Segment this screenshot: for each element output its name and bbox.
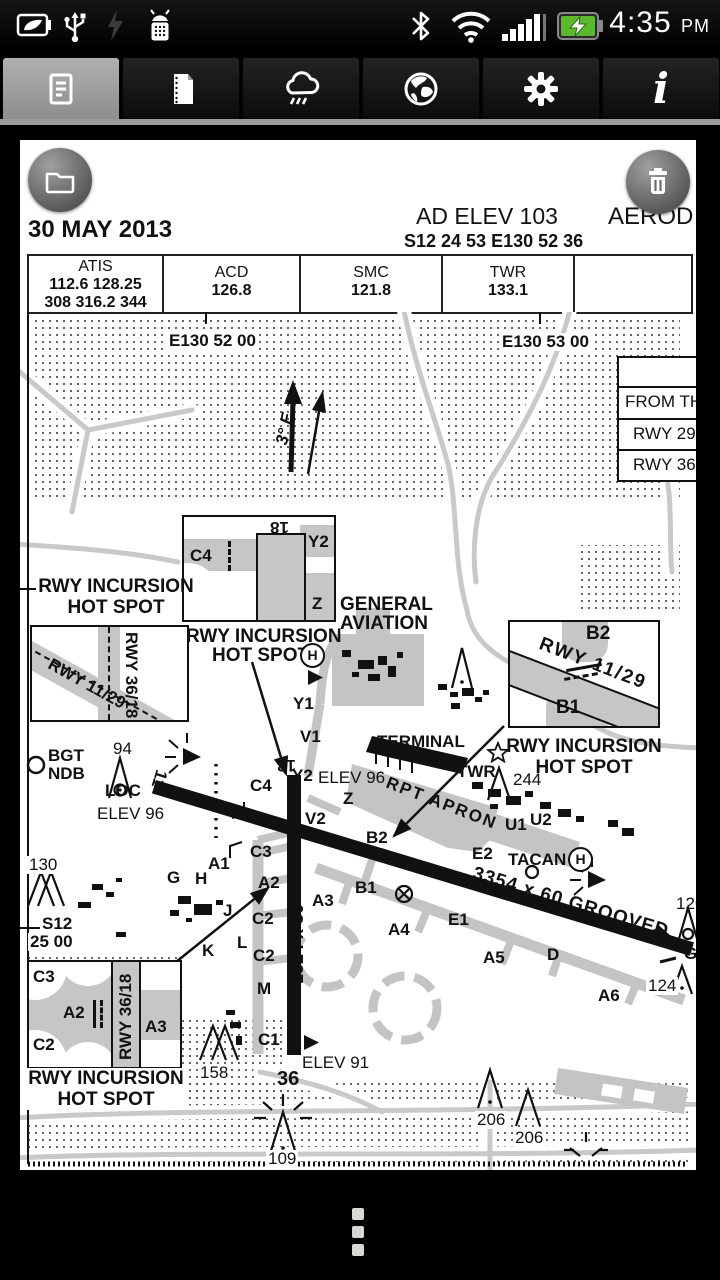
- taxiway-label: M: [257, 980, 271, 998]
- battery-saver-icon: [16, 8, 54, 42]
- tab-web[interactable]: [362, 57, 480, 121]
- taxiway-label: C2: [253, 947, 275, 965]
- gear-icon: [522, 70, 560, 108]
- taxiway-label: L: [237, 934, 247, 952]
- obstacle-elevation: 206: [513, 1129, 545, 1147]
- rwy-incursion-caption: RWY INCURSION HOT SPOT: [34, 576, 198, 618]
- open-folder-button[interactable]: [28, 148, 92, 212]
- caption-line: RWY INCURSION: [34, 576, 198, 597]
- taxiway-label: A4: [388, 921, 410, 939]
- taxiway-label: Z: [343, 790, 353, 808]
- document-icon: [43, 71, 79, 107]
- taxiway-label: B2: [366, 829, 388, 847]
- coordinate-label: S12: [40, 915, 74, 933]
- freq-title: ACD: [164, 264, 299, 282]
- taxiway-label: V2: [305, 810, 326, 828]
- coordinate-label: 25 00: [28, 933, 75, 951]
- taxiway-label: C3: [33, 968, 55, 986]
- taxiway-label: A3: [145, 1018, 167, 1036]
- handle-dot: [352, 1208, 364, 1220]
- tab-strip: [0, 119, 720, 125]
- freq-title: SMC: [301, 264, 441, 282]
- navaid-label: GR: [684, 945, 696, 963]
- freq-cell-smc: SMC 121.8: [301, 256, 443, 312]
- taxiway-label: Y2: [308, 533, 329, 551]
- clock-ampm: PM: [681, 16, 710, 36]
- rwy-label: RWY 36/18: [122, 632, 140, 718]
- taxiway-label: C4: [190, 547, 212, 565]
- taxiway-label: B1: [556, 698, 580, 718]
- tab-info[interactable]: i: [602, 57, 720, 121]
- frequency-table: ATIS 112.6 128.25 308 316.2 344 ACD 126.…: [27, 254, 693, 314]
- taxiway-label: V1: [300, 728, 321, 746]
- caption-line: HOT SPOT: [27, 1089, 185, 1110]
- chart-coords: S12 24 53 E130 52 36: [404, 231, 583, 252]
- inset-rwy3618: C3 A2 C2 RWY 36/18 A3: [27, 960, 182, 1069]
- taxiway-label: D: [547, 946, 559, 964]
- elevation-label: ELEV 91: [302, 1054, 369, 1072]
- taxiway-label: C2: [252, 910, 274, 928]
- android-icon: [142, 8, 178, 46]
- navaid-label: TACAN: [508, 851, 566, 869]
- area-label: AVIATION: [340, 614, 428, 634]
- signal-strength-icon: [500, 8, 550, 44]
- taxiway-label: K: [202, 942, 214, 960]
- rwy-incursion-caption: RWY INCURSION HOT SPOT: [25, 1068, 187, 1110]
- chart-sheet[interactable]: 30 MAY 2013 AD ELEV 103 S12 24 53 E130 5…: [20, 140, 696, 1170]
- taxiway-label: B1: [355, 879, 377, 897]
- taxiway-label: H: [195, 870, 207, 888]
- taxiway-label: A2: [258, 874, 280, 892]
- tab-bar: i: [0, 55, 720, 125]
- freq-title: TWR: [443, 264, 573, 282]
- globe-icon: [402, 70, 440, 108]
- freq-title: ATIS: [29, 258, 162, 276]
- area-label: GENERAL: [340, 595, 433, 615]
- tower-label: TWR: [457, 763, 496, 781]
- rwy-label: RWY 36/18: [117, 974, 135, 1060]
- wifi-icon: [448, 8, 494, 44]
- rwy-incursion-caption: HOT SPOT: [212, 645, 309, 666]
- caption-line: RWY INCURSION: [27, 1068, 185, 1089]
- coordinate-label: E130 52 00: [167, 332, 258, 350]
- obstacle-elevation: 244: [513, 771, 541, 789]
- freq-value: 308 316.2 344: [29, 294, 162, 312]
- coordinate-label: E130 53 00: [500, 333, 591, 351]
- obstacle-elevation: 130: [27, 856, 59, 874]
- tab-documents[interactable]: [122, 57, 240, 121]
- tab-charts[interactable]: [2, 57, 120, 121]
- freq-cell-empty: [575, 256, 691, 312]
- rwy-designator-label: 18: [270, 518, 289, 536]
- rwy-dimension-label: 1524 x 30: [288, 904, 307, 984]
- taxiway-label: U2: [530, 811, 552, 829]
- taxiway-label: A5: [483, 949, 505, 967]
- usb-icon: [62, 8, 88, 46]
- menu-handle[interactable]: [352, 1208, 364, 1262]
- battery-charging-icon: [556, 8, 604, 44]
- freq-value: 112.6 128.25: [29, 276, 162, 294]
- status-bar: 4:35 PM: [0, 0, 720, 50]
- elevation-label: 94: [113, 740, 132, 758]
- delete-chart-button[interactable]: [626, 150, 690, 214]
- freq-cell-acd: ACD 126.8: [164, 256, 301, 312]
- taxiway-label: E2: [472, 845, 493, 863]
- freq-cell-twr: TWR 133.1: [443, 256, 575, 312]
- taxiway-label: G: [167, 869, 180, 887]
- trash-icon: [641, 165, 675, 199]
- lightning-icon: [102, 8, 128, 44]
- taxiway-label: E1: [448, 911, 469, 929]
- caption-line: HOT SPOT: [34, 597, 198, 618]
- obstacle-elevation: 109: [266, 1150, 298, 1168]
- clock-time: 4:35: [609, 6, 671, 39]
- taxiway-label: C1: [258, 1031, 280, 1049]
- navaid-label: NDB: [48, 765, 85, 783]
- inset-runway-crossing: RWY 36/18 RWY 11/29: [30, 625, 189, 722]
- taxiway-label: Z: [312, 595, 322, 613]
- obstacle-elevation: 158: [198, 1064, 230, 1082]
- rain-cloud-icon: [281, 70, 321, 108]
- inset-rwy18-threshold: 18 C4 Y2 Z: [182, 515, 336, 622]
- handle-dot: [352, 1226, 364, 1238]
- taxiway-label: A1: [208, 855, 230, 873]
- freq-value: 133.1: [443, 282, 573, 300]
- area-label: TERMINAL: [377, 733, 465, 751]
- declared-distance-table: FROM TH RWY 29 RWY 36: [617, 356, 696, 482]
- table-row: FROM TH: [619, 388, 696, 420]
- obstacle-elevation: 126: [676, 895, 696, 913]
- table-row: RWY 29: [619, 420, 696, 451]
- clock: 4:35 PM: [609, 6, 710, 40]
- table-row: RWY 36: [619, 451, 696, 480]
- taxiway-label: C2: [33, 1036, 55, 1054]
- taxiway-label: A6: [598, 987, 620, 1005]
- tab-weather[interactable]: [242, 57, 360, 121]
- elevation-label: ELEV 96: [97, 805, 164, 823]
- navaid-label: LOC: [105, 782, 141, 800]
- bluetooth-icon: [408, 8, 434, 44]
- elevation-label: ELEV 96: [318, 769, 385, 787]
- inset-rwy1129: B2 RWY 11/29 B1: [508, 620, 660, 728]
- taxiway-label: Y1: [293, 695, 314, 713]
- rwy-designator-label: 36: [277, 1069, 299, 1090]
- freq-value: 121.8: [301, 282, 441, 300]
- table-row: [619, 358, 696, 388]
- freq-value: 126.8: [164, 282, 299, 300]
- caption-line: RWY INCURSION: [506, 736, 662, 757]
- chart-ad-elev: AD ELEV 103: [416, 203, 558, 230]
- aerodrome-map[interactable]: 18 C4 Y2 Z RWY INCURSION HOT SPOT RWY 36…: [20, 312, 696, 1170]
- taxiway-label: A2: [63, 1004, 85, 1022]
- handle-dot: [352, 1244, 364, 1256]
- obstacle-elevation: 124: [646, 977, 678, 995]
- navaid-label: BGT: [48, 747, 84, 765]
- taxiway-label: J: [223, 902, 232, 920]
- taxiway-label: A3: [312, 892, 334, 910]
- obstacle-elevation: 206: [475, 1111, 507, 1129]
- helipad-icon: H: [568, 847, 593, 872]
- info-icon: i: [653, 69, 669, 109]
- chart-date: 30 MAY 2013: [28, 216, 172, 244]
- taxiway-label: C4: [250, 777, 272, 795]
- helipad-icon: H: [300, 643, 325, 668]
- notepad-icon: [163, 71, 199, 107]
- tab-settings[interactable]: [482, 57, 600, 121]
- taxiway-label: U1: [505, 816, 527, 834]
- folder-icon: [43, 165, 77, 195]
- rwy-designator-label: 18: [277, 756, 296, 774]
- taxiway-label: C3: [250, 843, 272, 861]
- freq-cell-atis: ATIS 112.6 128.25 308 316.2 344: [29, 256, 164, 312]
- taxiway-label: B2: [586, 624, 610, 644]
